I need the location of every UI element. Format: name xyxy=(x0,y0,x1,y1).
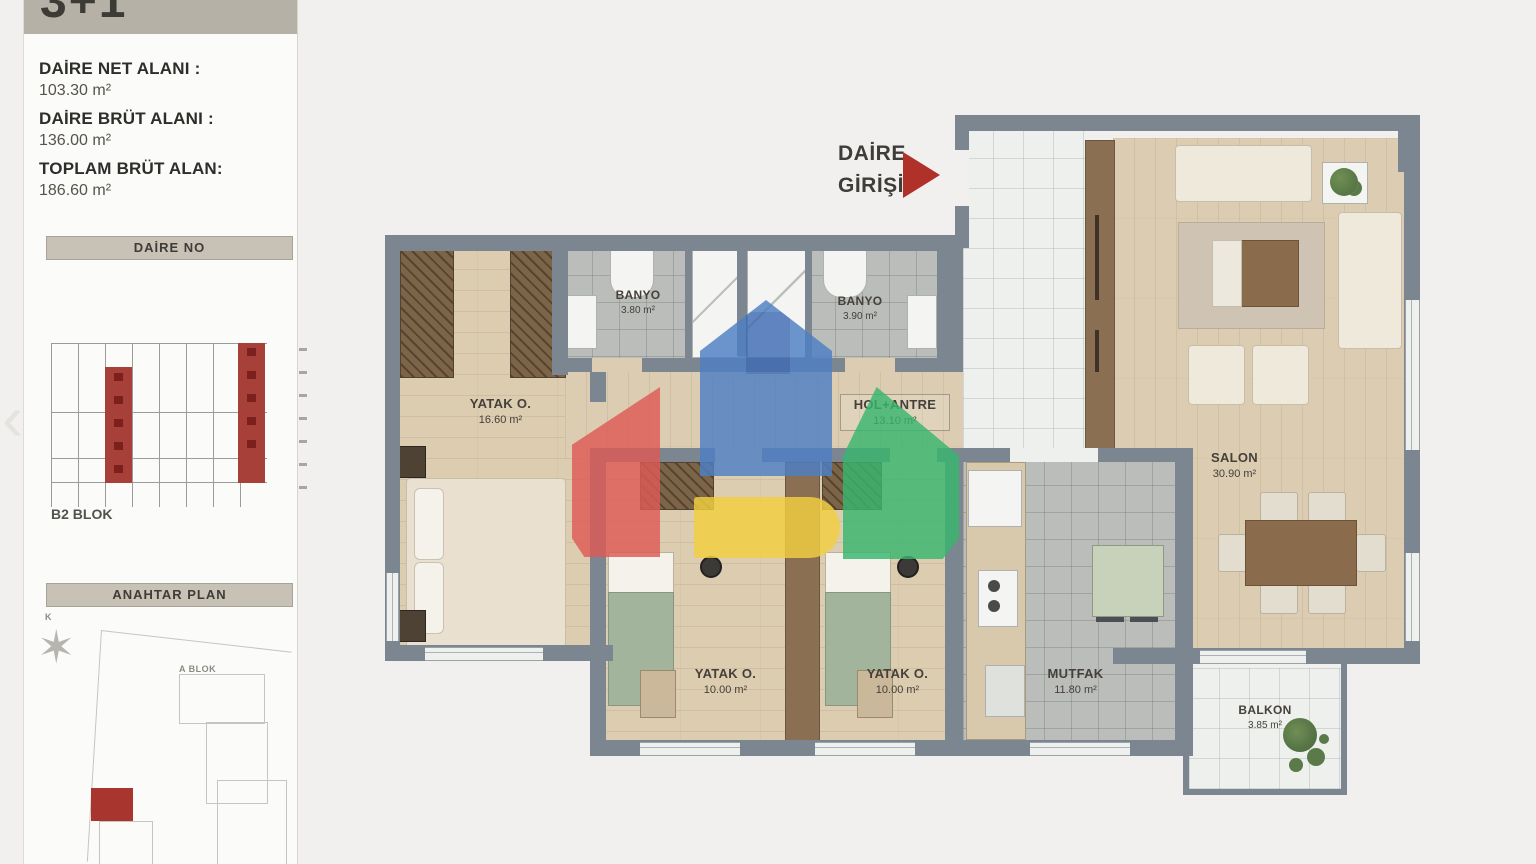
entrance-callout: DAİRE GİRİŞİ xyxy=(838,138,906,202)
room-label-bedroom-a: YATAK O. 10.00 m² xyxy=(683,666,768,697)
total-area-label: TOPLAM BRÜT ALAN: xyxy=(39,159,279,179)
room-name: BALKON xyxy=(1226,703,1304,719)
sofa xyxy=(1338,212,1402,349)
net-area-value: 103.30 m² xyxy=(39,82,279,100)
unit-number-mark xyxy=(114,465,123,473)
info-sidebar: 3+1 DAİRE NET ALANI : 103.30 m² DAİRE BR… xyxy=(23,0,298,864)
floor-plan-page: ‹ 3+1 DAİRE NET ALANI : 103.30 m² DAİRE … xyxy=(0,0,1536,864)
dining-chair xyxy=(1308,584,1346,614)
door-opening xyxy=(1010,448,1098,462)
pillow xyxy=(414,488,444,560)
wardrobe xyxy=(400,240,454,378)
armchair xyxy=(1188,345,1245,405)
desk xyxy=(640,670,676,718)
total-area-value: 186.60 m² xyxy=(39,182,279,200)
oven xyxy=(985,665,1025,717)
unit-number-mark xyxy=(114,442,123,450)
room-label-banyo-1: BANYO 3.80 m² xyxy=(598,288,678,317)
room-name: YATAK O. xyxy=(855,666,940,683)
dining-chair xyxy=(1308,492,1346,522)
unit-number-mark xyxy=(114,396,123,404)
site-boundary-line xyxy=(101,630,292,653)
entrance-door-opening xyxy=(955,150,969,206)
wall xyxy=(552,235,568,375)
room-label-balcony: BALKON 3.85 m² xyxy=(1226,703,1304,732)
window xyxy=(425,647,543,661)
room-name: BANYO xyxy=(820,294,900,310)
window xyxy=(815,742,915,756)
floor-tick xyxy=(299,463,307,466)
window xyxy=(1405,553,1420,641)
balcony-wall xyxy=(1341,664,1347,792)
room-area: 10.00 m² xyxy=(855,683,940,697)
unit-number-mark xyxy=(114,419,123,427)
room-label-bedroom-b: YATAK O. 10.00 m² xyxy=(855,666,940,697)
wall xyxy=(385,235,963,251)
room-area: 3.90 m² xyxy=(820,310,900,323)
unit-number-grid xyxy=(51,343,267,507)
grid-line xyxy=(51,412,267,413)
single-bed-pillow xyxy=(608,552,674,594)
room-name: MUTFAK xyxy=(1033,666,1118,683)
entry-closet xyxy=(1085,140,1115,460)
bathroom-sink xyxy=(907,295,937,349)
highlighted-unit-column xyxy=(105,367,132,483)
floor-tick xyxy=(299,394,307,397)
brut-area-label: DAİRE BRÜT ALANI : xyxy=(39,109,279,129)
armchair xyxy=(1252,345,1309,405)
closet-handle xyxy=(1095,215,1099,300)
plan-type-header: 3+1 xyxy=(24,0,297,34)
daire-no-header: DAİRE NO xyxy=(46,236,293,260)
window xyxy=(1405,300,1420,450)
burner xyxy=(988,600,1000,612)
dining-chair xyxy=(1218,534,1248,572)
room-label-banyo-2: BANYO 3.90 m² xyxy=(820,294,900,323)
floor-tick xyxy=(299,486,307,489)
area-stats: DAİRE NET ALANI : 103.30 m² DAİRE BRÜT A… xyxy=(39,50,279,200)
room-name: YATAK O. xyxy=(683,666,768,683)
room-area: 3.80 m² xyxy=(598,304,678,317)
door-opening xyxy=(592,358,642,372)
window xyxy=(640,742,740,756)
entrance-line2: GİRİŞİ xyxy=(838,170,906,202)
room-area: 16.60 m² xyxy=(453,413,548,427)
entrance-line1: DAİRE xyxy=(838,138,906,170)
block-label: B2 BLOK xyxy=(51,506,112,522)
window xyxy=(386,573,399,641)
dining-table xyxy=(1245,520,1357,586)
block-a-label: A BLOK xyxy=(179,664,216,674)
unit-number-mark xyxy=(114,373,123,381)
unit-number-mark xyxy=(247,348,256,356)
burner xyxy=(988,580,1000,592)
room-name: BANYO xyxy=(598,288,678,304)
wall xyxy=(937,248,963,372)
block-c-outline xyxy=(217,780,287,864)
plan-type-label: 3+1 xyxy=(40,0,127,29)
floor-tick xyxy=(299,440,307,443)
grid-line xyxy=(51,458,267,459)
sofa xyxy=(1175,145,1312,202)
floor-tick xyxy=(299,417,307,420)
selected-unit-marker xyxy=(91,788,133,821)
dining-chair xyxy=(1356,534,1386,572)
dining-chair xyxy=(1260,584,1298,614)
window xyxy=(1030,742,1130,756)
floor-entry xyxy=(963,128,1085,458)
room-label-kitchen: MUTFAK 11.80 m² xyxy=(1033,666,1118,697)
block-b-outline xyxy=(99,821,153,864)
room-area: 30.90 m² xyxy=(1192,467,1277,481)
wall xyxy=(685,248,692,358)
brand-watermark-door xyxy=(746,312,790,374)
anahtar-plan-header: ANAHTAR PLAN xyxy=(46,583,293,607)
cooktop xyxy=(978,570,1018,627)
prev-arrow-icon[interactable]: ‹ xyxy=(2,388,23,448)
room-label-master-bedroom: YATAK O. 16.60 m² xyxy=(453,396,548,427)
site-key-plan: K ✶ A BLOK xyxy=(29,610,291,864)
plant xyxy=(1330,168,1358,196)
dining-chair xyxy=(1260,492,1298,522)
unit-number-mark xyxy=(247,440,256,448)
balcony-wall xyxy=(1183,664,1189,792)
balcony-wall xyxy=(1183,789,1347,795)
room-area: 3.85 m² xyxy=(1226,719,1304,732)
grid-line xyxy=(51,343,267,344)
brut-area-value: 136.00 m² xyxy=(39,132,279,150)
floor-tick xyxy=(299,348,307,351)
room-area: 10.00 m² xyxy=(683,683,768,697)
entrance-arrow-icon xyxy=(903,152,940,198)
bedside-stool xyxy=(897,556,919,578)
bedside-stool xyxy=(700,556,722,578)
highlighted-unit-column xyxy=(238,343,265,483)
toilet xyxy=(823,250,867,298)
room-name: YATAK O. xyxy=(453,396,548,413)
balcony-door xyxy=(1200,650,1306,664)
bathroom-sink xyxy=(567,295,597,349)
kitchen-table xyxy=(1092,545,1164,617)
compass-icon: ✶ xyxy=(37,624,76,670)
net-area-label: DAİRE NET ALANI : xyxy=(39,59,279,79)
room-name: SALON xyxy=(1192,450,1277,467)
grid-line xyxy=(51,482,267,483)
room-label-salon: SALON 30.90 m² xyxy=(1192,450,1277,481)
room-area: 11.80 m² xyxy=(1033,683,1118,697)
floor-tick xyxy=(299,371,307,374)
kitchen-sink-unit xyxy=(968,470,1022,527)
wall xyxy=(955,115,1420,131)
closet-handle xyxy=(1095,330,1099,372)
unit-number-mark xyxy=(247,417,256,425)
brand-watermark-yellow-house-icon xyxy=(694,497,840,558)
unit-number-mark xyxy=(247,394,256,402)
coffee-table-tray xyxy=(1212,240,1242,307)
door-opening xyxy=(845,358,895,372)
unit-number-mark xyxy=(247,371,256,379)
block-a-outline xyxy=(179,674,265,724)
